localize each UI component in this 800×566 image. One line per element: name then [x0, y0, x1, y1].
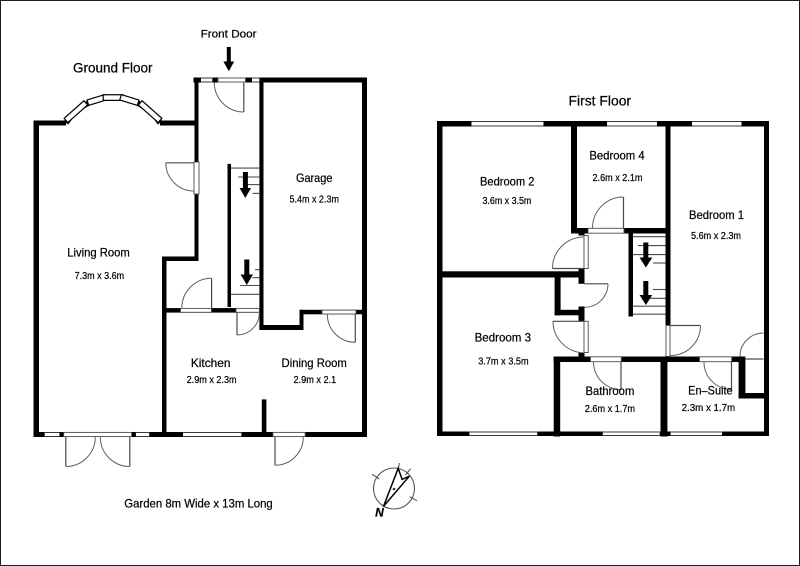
svg-text:Dining Room: Dining Room: [282, 356, 347, 370]
svg-text:Living Room: Living Room: [67, 246, 130, 260]
svg-text:3.6m x 3.5m: 3.6m x 3.5m: [483, 196, 532, 207]
svg-text:En–Suite: En–Suite: [688, 384, 733, 398]
svg-text:Garden 8m Wide x 13m Long: Garden 8m Wide x 13m Long: [124, 497, 273, 511]
svg-text:Bedroom 4: Bedroom 4: [589, 148, 645, 162]
svg-text:2.9m x 2.1: 2.9m x 2.1: [294, 375, 337, 386]
svg-text:N: N: [375, 506, 384, 520]
svg-text:Bathroom: Bathroom: [585, 384, 634, 398]
svg-text:3.7m x 3.5m: 3.7m x 3.5m: [478, 357, 528, 368]
svg-text:Garage: Garage: [296, 171, 333, 185]
svg-text:Kitchen: Kitchen: [191, 356, 231, 370]
svg-text:7.3m x 3.6m: 7.3m x 3.6m: [75, 271, 125, 282]
svg-text:Ground Floor: Ground Floor: [73, 60, 153, 76]
svg-text:2.3m x 1.7m: 2.3m x 1.7m: [682, 403, 736, 414]
svg-text:Bedroom 2: Bedroom 2: [480, 175, 535, 189]
svg-text:Front Door: Front Door: [201, 29, 257, 41]
svg-text:5.6m x 2.3m: 5.6m x 2.3m: [691, 231, 741, 242]
svg-text:First Floor: First Floor: [569, 92, 632, 108]
svg-text:5.4m x 2.3m: 5.4m x 2.3m: [289, 195, 339, 206]
svg-text:2.6m x 2.1m: 2.6m x 2.1m: [593, 173, 643, 184]
svg-text:2.6m x 1.7m: 2.6m x 1.7m: [585, 404, 635, 415]
svg-text:2.9m x 2.3m: 2.9m x 2.3m: [187, 375, 237, 386]
svg-text:Bedroom 3: Bedroom 3: [475, 330, 532, 344]
svg-text:Bedroom 1: Bedroom 1: [689, 208, 744, 222]
